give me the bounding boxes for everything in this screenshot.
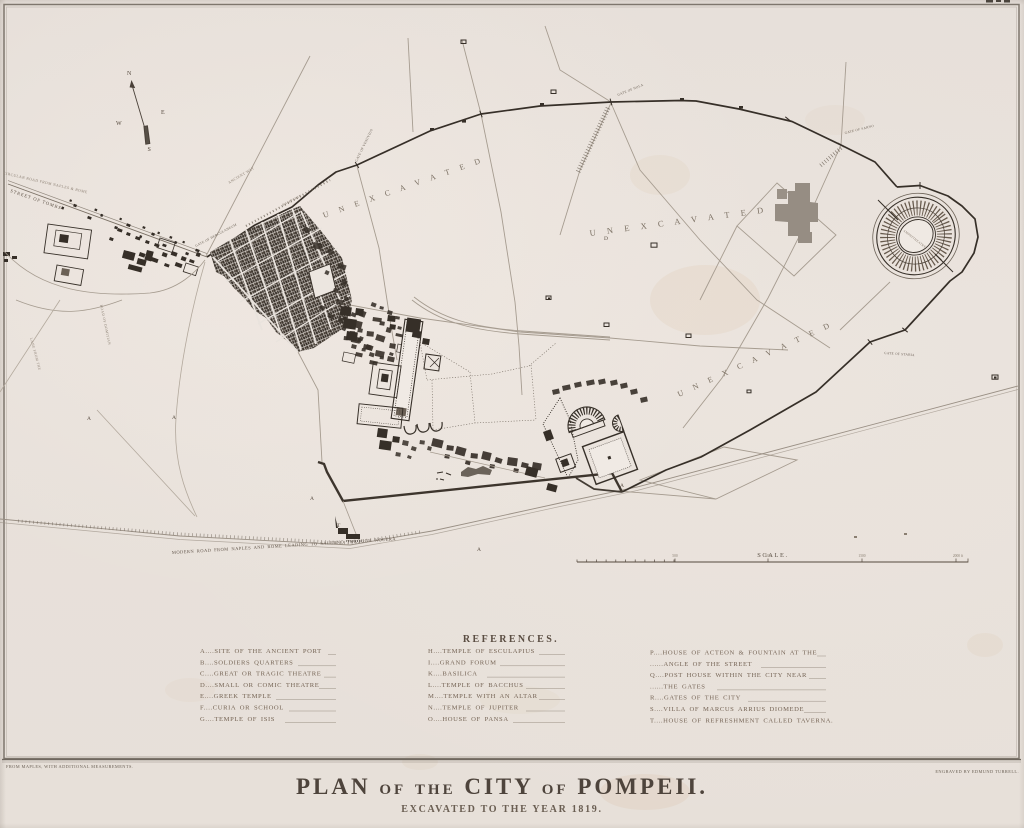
svg-text:500: 500 bbox=[672, 554, 678, 558]
svg-text:L....TEMPLE OF BACCHUS: L....TEMPLE OF BACCHUS bbox=[428, 682, 524, 689]
svg-text:ROAD OF DOMITIAN: ROAD OF DOMITIAN bbox=[99, 304, 111, 345]
svg-text:S: S bbox=[148, 147, 151, 153]
svg-text:D....SMALL OR COMIC THEATRE: D....SMALL OR COMIC THEATRE bbox=[200, 682, 319, 689]
svg-text:A: A bbox=[477, 547, 481, 553]
svg-text:I....GRAND FORUM: I....GRAND FORUM bbox=[428, 659, 497, 666]
svg-text:......ANGLE OF THE STREET: ......ANGLE OF THE STREET bbox=[650, 661, 752, 668]
svg-text:A: A bbox=[172, 415, 176, 421]
svg-text:GATE OF VESUVIUS: GATE OF VESUVIUS bbox=[354, 128, 373, 162]
svg-text:F....CURIA OR SCHOOL: F....CURIA OR SCHOOL bbox=[200, 705, 284, 712]
svg-text:PLAN OF THE CITY OF POMPEII.: PLAN OF THE CITY OF POMPEII. bbox=[296, 774, 708, 799]
svg-text:G....TEMPLE OF ISIS: G....TEMPLE OF ISIS bbox=[200, 716, 275, 723]
svg-text:A: A bbox=[620, 483, 624, 489]
svg-text:U N E X C A V A T E D: U N E X C A V A T E D bbox=[322, 155, 486, 220]
svg-text:ANCIENT WAY: ANCIENT WAY bbox=[227, 166, 255, 185]
svg-text:D: D bbox=[604, 236, 608, 242]
svg-text:2000 ft: 2000 ft bbox=[953, 554, 963, 558]
svg-text:M....TEMPLE WITH AN ALTAR: M....TEMPLE WITH AN ALTAR bbox=[428, 693, 538, 700]
svg-text:STREET OF TOMBS: STREET OF TOMBS bbox=[10, 188, 63, 210]
svg-text:FROM MAPLES, WITH ADDITIONAL M: FROM MAPLES, WITH ADDITIONAL MEASUREMENT… bbox=[6, 764, 133, 770]
svg-text:A: A bbox=[87, 416, 91, 422]
svg-text:P....HOUSE OF ACTEON & FOUNTAI: P....HOUSE OF ACTEON & FOUNTAIN AT THE bbox=[650, 650, 817, 657]
svg-text:W: W bbox=[116, 121, 122, 127]
svg-text:E: E bbox=[161, 110, 165, 116]
svg-text:A....SITE OF THE ANCIENT PORT: A....SITE OF THE ANCIENT PORT bbox=[200, 648, 322, 655]
svg-text:N: N bbox=[127, 71, 132, 77]
svg-text:SCALE.: SCALE. bbox=[757, 552, 788, 559]
svg-text:N....TEMPLE OF JUPITER: N....TEMPLE OF JUPITER bbox=[428, 705, 519, 712]
svg-text:LANE FROM THE: LANE FROM THE bbox=[29, 337, 42, 371]
svg-text:......THE GATES: ......THE GATES bbox=[650, 683, 705, 690]
svg-text:EXCAVATED TO THE YEAR 1819.: EXCAVATED TO THE YEAR 1819. bbox=[401, 804, 602, 815]
svg-text:Q....POST HOUSE WITHIN THE CIT: Q....POST HOUSE WITHIN THE CITY NEAR bbox=[650, 672, 807, 679]
svg-text:O....HOUSE OF PANSA: O....HOUSE OF PANSA bbox=[428, 716, 509, 723]
svg-text:C....GREAT OR TRAGIC THEATRE: C....GREAT OR TRAGIC THEATRE bbox=[200, 671, 321, 678]
svg-text:E....GREEK TEMPLE: E....GREEK TEMPLE bbox=[200, 693, 272, 700]
svg-text:R....GATES OF THE CITY: R....GATES OF THE CITY bbox=[650, 695, 741, 702]
svg-text:A: A bbox=[310, 496, 314, 502]
svg-text:1500: 1500 bbox=[858, 554, 865, 558]
svg-text:REFERENCES.: REFERENCES. bbox=[463, 634, 559, 645]
svg-text:S....VILLA OF MARCUS ARRIUS DI: S....VILLA OF MARCUS ARRIUS DIOMEDE bbox=[650, 706, 804, 713]
svg-text:B....SOLDIERS QUARTERS: B....SOLDIERS QUARTERS bbox=[200, 659, 293, 666]
svg-text:K....BASILICA: K....BASILICA bbox=[428, 671, 478, 678]
svg-text:T....HOUSE OF REFRESHMENT CALL: T....HOUSE OF REFRESHMENT CALLED TAVERNA… bbox=[650, 717, 833, 724]
svg-text:GATE OF NOLA: GATE OF NOLA bbox=[617, 83, 644, 97]
svg-text:H....TEMPLE OF ESCULAPIUS: H....TEMPLE OF ESCULAPIUS bbox=[428, 648, 535, 655]
svg-text:ENGRAVED BY EDMUND TURRELL.: ENGRAVED BY EDMUND TURRELL. bbox=[935, 769, 1019, 774]
svg-text:GATE OF STABIA: GATE OF STABIA bbox=[884, 351, 915, 357]
svg-text:MODERN ROAD FROM NAPLES AND RO: MODERN ROAD FROM NAPLES AND ROME LEADING… bbox=[172, 536, 397, 555]
